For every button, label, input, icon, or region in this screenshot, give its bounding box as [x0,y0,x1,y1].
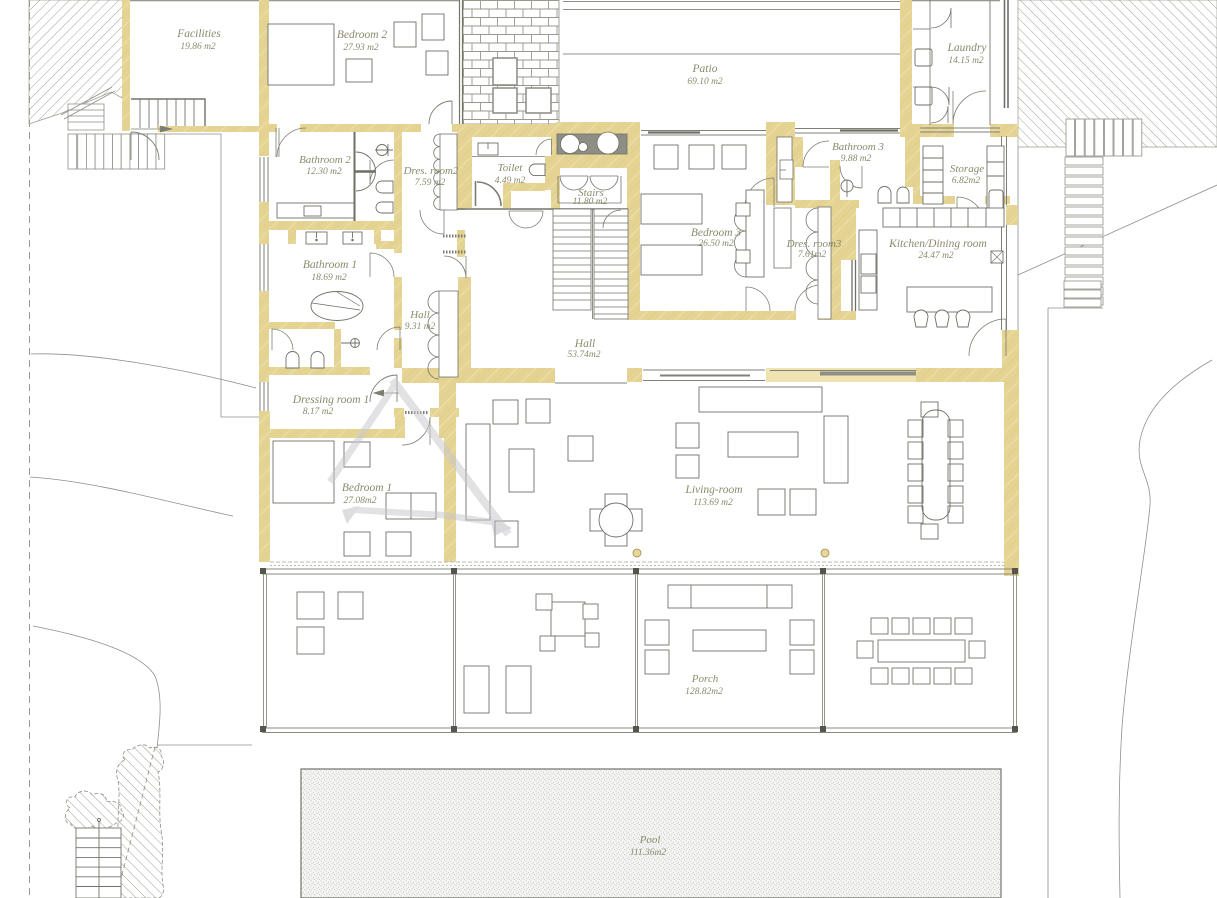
svg-text:Porch: Porch [691,673,719,685]
svg-text:9.88 m2: 9.88 m2 [841,154,872,164]
svg-text:Laundry: Laundry [947,42,988,54]
svg-text:11.80 m2: 11.80 m2 [573,197,608,207]
svg-text:9.31 m2: 9.31 m2 [405,322,436,332]
svg-text:18.69 m2: 18.69 m2 [311,273,347,283]
svg-text:8.17 m2: 8.17 m2 [303,407,334,417]
svg-text:Toilet: Toilet [498,162,524,174]
svg-text:128.82m2: 128.82m2 [685,687,723,697]
svg-text:19.86 m2: 19.86 m2 [180,42,216,52]
svg-text:27.93 m2: 27.93 m2 [343,43,379,53]
svg-text:Pool: Pool [639,834,661,846]
svg-text:Hall: Hall [409,309,430,321]
svg-text:27.08m2: 27.08m2 [344,496,377,506]
svg-text:Bathroom 2: Bathroom 2 [299,154,351,166]
svg-text:Patio: Patio [692,63,718,75]
svg-text:Dres. room3: Dres. room3 [786,238,842,250]
svg-text:Hall: Hall [574,338,595,350]
svg-text:Bathroom 1: Bathroom 1 [303,259,357,271]
svg-text:Living-room: Living-room [684,484,742,496]
svg-text:4.49 m2: 4.49 m2 [495,176,526,186]
svg-text:Dressing room 1: Dressing room 1 [292,394,369,406]
svg-text:Facilities: Facilities [176,28,221,40]
svg-text:53.74m2: 53.74m2 [568,350,601,360]
svg-text:14.15 m2: 14.15 m2 [948,56,984,66]
svg-text:12.30 m2: 12.30 m2 [306,167,342,177]
svg-text:Bedroom 2: Bedroom 2 [337,29,388,41]
svg-text:24.47 m2: 24.47 m2 [918,251,954,261]
svg-text:Kitchen/Dining room: Kitchen/Dining room [888,238,987,250]
svg-text:Bedroom 3: Bedroom 3 [691,227,742,239]
svg-text:6.82m2: 6.82m2 [952,176,980,186]
svg-text:26.50 m2: 26.50 m2 [698,239,734,249]
svg-text:113.69 m2: 113.69 m2 [693,498,733,508]
svg-text:111.36m2: 111.36m2 [630,848,667,858]
svg-text:Bathroom 3: Bathroom 3 [832,141,884,153]
svg-text:Storage: Storage [950,163,984,175]
svg-text:7.61m2: 7.61m2 [798,250,826,260]
svg-text:Bedroom 1: Bedroom 1 [342,482,392,494]
svg-text:7.59 m2: 7.59 m2 [415,178,446,188]
svg-text:Dres. room2: Dres. room2 [403,165,459,177]
svg-text:69.10 m2: 69.10 m2 [687,77,723,87]
